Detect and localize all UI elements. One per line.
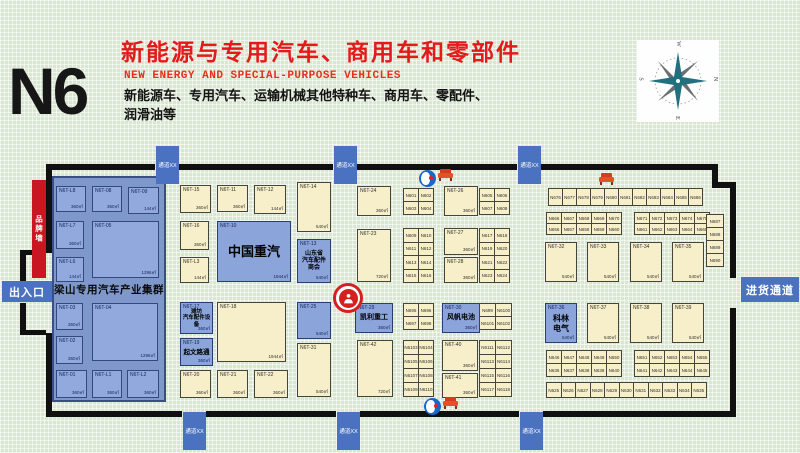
booth-N6T-30: N6T-30风帆电池360㎡ <box>442 303 480 333</box>
booth-cell-N635: N635 <box>691 382 707 398</box>
booth-area: 540㎡ <box>689 335 701 341</box>
floorplan-stage: N6 新能源与专用汽车、商用车和零部件 NEW ENERGY AND SPECI… <box>0 0 800 453</box>
page-subtitle-en: NEW ENERGY AND SPECIAL-PURPOSE VEHICLES <box>124 70 401 82</box>
compass-letter-bottom: E <box>674 116 680 120</box>
booth-code: N6T-03 <box>59 305 75 311</box>
booth-N6T-13: N6T-13山东省 汽车配件 商会540㎡ <box>297 239 331 283</box>
passage-label: 通道XX <box>156 146 179 184</box>
booth-cell-N6104: N6104 <box>418 340 434 355</box>
booth-area: 540㎡ <box>604 335 616 341</box>
booth-cell-N601: N601 <box>403 188 419 202</box>
booth-cell-N6105: N6105 <box>403 354 419 369</box>
booth-N6T-21: N6T-21360㎡ <box>217 370 248 398</box>
booth-cell-N651: N651 <box>634 350 650 364</box>
booth-N6T-12: N6T-12144㎡ <box>254 185 286 214</box>
booth-cell-N621: N621 <box>479 255 495 270</box>
booth-code: N6T-27 <box>447 230 463 236</box>
booth-cell-N660: N660 <box>606 223 622 235</box>
booth-area: 360㎡ <box>198 358 210 364</box>
booth-N6T-L6: N6T-L6144㎡ <box>56 257 84 282</box>
booth-area: 144㎡ <box>69 274 81 280</box>
booth-cell-N6115: N6115 <box>479 368 496 383</box>
booth-cell-N611: N611 <box>403 242 419 257</box>
booth-cell-N662: N662 <box>649 223 665 235</box>
booth-area: 540㎡ <box>316 389 328 395</box>
booth-cell-N685: N685 <box>674 188 689 206</box>
wall-segment <box>179 164 333 170</box>
wall-segment <box>360 411 519 417</box>
booth-cell-N652: N652 <box>649 350 665 364</box>
booth-N6T-31: N6T-31540㎡ <box>297 343 331 397</box>
passage-label: 通道XX <box>337 412 360 450</box>
booth-area: 720㎡ <box>376 274 388 280</box>
booth-N6T-24: N6T-24360㎡ <box>357 186 391 216</box>
booth-cell-N6114: N6114 <box>495 354 512 369</box>
booth-cell-N614: N614 <box>418 255 434 270</box>
wall-segment <box>46 164 155 170</box>
booth-cell-N648: N648 <box>576 350 592 364</box>
booth-area: 540㎡ <box>316 331 328 337</box>
booth-N6T-L2: N6T-L2360㎡ <box>127 370 159 398</box>
booth-cell-N620: N620 <box>494 242 510 257</box>
booth-cell-N686: N686 <box>688 188 703 206</box>
booth-area: 360㎡ <box>107 390 119 396</box>
booth-area: 144㎡ <box>144 206 156 212</box>
booth-code: N6T-L2 <box>130 372 146 378</box>
booth-cell-N678: N678 <box>576 188 591 206</box>
booth-cell-N6118: N6118 <box>495 382 512 397</box>
booth-N6T-17: N6T-17潍坊 汽车配件设备360㎡ <box>180 302 213 334</box>
booth-N6T-14: N6T-14540㎡ <box>297 182 331 232</box>
booth-cell-N6110: N6110 <box>418 382 434 397</box>
booth-cell-N6106: N6106 <box>418 354 434 369</box>
booth-cell-N687: N687 <box>706 214 724 228</box>
booth-cell-N664: N664 <box>679 223 695 235</box>
booth-area: 540㎡ <box>689 274 701 280</box>
booth-code: N6T-38 <box>633 305 649 311</box>
booth-code: N6T-21 <box>220 372 236 378</box>
booth-area: 540㎡ <box>316 275 328 281</box>
booth-cell-N637: N637 <box>561 363 577 377</box>
booth-code: N6T-L6 <box>59 259 75 265</box>
booth-cell-N622: N622 <box>494 255 510 270</box>
booth-cell-N654: N654 <box>679 350 695 364</box>
booth-cell-N683: N683 <box>646 188 661 206</box>
compass-letter-top: W <box>675 41 681 47</box>
booth-cell-N6103: N6103 <box>403 340 419 355</box>
booth-cell-N6111: N6111 <box>479 340 496 355</box>
booth-cell-N695: N695 <box>403 303 419 317</box>
booth-cell-N6117: N6117 <box>479 382 496 397</box>
liangshan-cluster-label: 梁山专用汽车产业集群 <box>52 282 166 296</box>
hall-code: N6 <box>8 58 86 124</box>
booth-cell-N661: N661 <box>634 223 650 235</box>
brand-wall: 品牌墙 <box>32 180 46 278</box>
booth-cell-N642: N642 <box>649 363 665 377</box>
booth-cell-N6109: N6109 <box>403 382 419 397</box>
booth-code: N6T-L3 <box>183 259 199 265</box>
booth-code: N6T-L8 <box>59 188 75 194</box>
booth-area: 360㎡ <box>196 205 208 211</box>
booth-cell-N613: N613 <box>403 255 419 270</box>
booth-N6T-34: N6T-34540㎡ <box>630 242 662 282</box>
passage-label: 通道XX <box>334 146 357 184</box>
compass-letter-right: N <box>712 77 718 81</box>
booth-N6T-40: N6T-40360㎡ <box>442 340 478 371</box>
compass-rose: W N E S <box>637 40 719 122</box>
booth-N6T-42: N6T-42720㎡ <box>357 340 393 397</box>
booth-cell-N659: N659 <box>591 223 607 235</box>
booth-code: N6T-05 <box>95 223 111 229</box>
booth-code: N6T-28 <box>447 259 463 265</box>
entrance-exit-label: 出入口 <box>2 281 52 302</box>
booth-cell-N684: N684 <box>660 188 675 206</box>
booth-code: N6T-40 <box>445 342 461 348</box>
booth-area: 360㎡ <box>463 390 475 396</box>
compass-star-icon <box>637 40 719 122</box>
booth-code: N6T-16 <box>183 223 199 229</box>
restroom-icon <box>419 170 436 187</box>
booth-N6T-05: N6T-051296㎡ <box>92 221 159 278</box>
booth-N6T-22: N6T-22360㎡ <box>254 370 288 398</box>
booth-N6T-18: N6T-181944㎡ <box>217 302 286 362</box>
booth-N6T-09: N6T-09144㎡ <box>128 187 159 214</box>
booth-cell-N625: N625 <box>546 382 562 398</box>
booth-cell-N603: N603 <box>403 201 419 215</box>
booth-N6T-02: N6T-02360㎡ <box>56 336 83 364</box>
wall-segment <box>543 411 736 417</box>
rest-area-sofa-icon <box>598 172 615 187</box>
booth-cell-N610: N610 <box>418 228 434 243</box>
booth-cell-N646: N646 <box>546 350 562 364</box>
booth-code: N6T-41 <box>445 375 461 381</box>
booth-cell-N645: N645 <box>694 363 710 377</box>
booth-N6T-41: N6T-41360㎡ <box>442 373 478 398</box>
booth-cell-N690: N690 <box>706 253 724 267</box>
booth-code: N6T-02 <box>59 338 75 344</box>
booth-cell-N640: N640 <box>606 363 622 377</box>
booth-cell-N6113: N6113 <box>479 354 496 369</box>
booth-cell-N681: N681 <box>618 188 633 206</box>
booth-code: N6T-25 <box>300 304 316 310</box>
booth-area: 360㎡ <box>107 204 119 210</box>
booth-area: 1296㎡ <box>141 270 156 276</box>
service-point-inner <box>339 289 358 308</box>
booth-cell-N634: N634 <box>677 382 693 398</box>
booth-area: 540㎡ <box>562 335 574 341</box>
booth-N6T-27: N6T-27360㎡ <box>444 228 478 255</box>
booth-N6T-L7: N6T-L7360㎡ <box>56 221 84 249</box>
booth-area: 360㎡ <box>378 325 390 331</box>
booth-N6T-38: N6T-38540㎡ <box>630 303 662 343</box>
booth-code: N6T-14 <box>300 184 316 190</box>
booth-area: 360㎡ <box>144 390 156 396</box>
booth-N6T-L3: N6T-L3144㎡ <box>180 257 209 283</box>
booth-area: 360㎡ <box>463 208 475 214</box>
booth-code: N6T-23 <box>360 231 376 237</box>
booth-code: N6T-09 <box>131 189 147 195</box>
booth-code: N6T-15 <box>183 187 199 193</box>
booth-cell-N636: N636 <box>546 363 562 377</box>
booth-cell-N631: N631 <box>633 382 649 398</box>
booth-code: N6T-24 <box>360 188 376 194</box>
wall-segment <box>46 411 182 417</box>
booth-code: N6T-32 <box>548 244 564 250</box>
wall-segment <box>206 411 336 417</box>
booth-cell-N643: N643 <box>664 363 680 377</box>
booth-N6T-19: N6T-19起文路通360㎡ <box>180 338 213 366</box>
booth-cell-N656: N656 <box>546 223 562 235</box>
booth-code: N6T-L1 <box>95 372 111 378</box>
booth-area: 540㎡ <box>604 274 616 280</box>
booth-N6T-33: N6T-33540㎡ <box>587 242 619 282</box>
booth-area: 360㎡ <box>376 208 388 214</box>
booth-area: 540㎡ <box>562 274 574 280</box>
booth-area: 360㎡ <box>68 322 80 328</box>
booth-N6T-23: N6T-23720㎡ <box>357 229 391 282</box>
booth-cell-N697: N697 <box>403 316 419 330</box>
booth-N6T-08: N6T-08360㎡ <box>92 186 122 212</box>
booth-N6T-25: N6T-25540㎡ <box>297 302 331 339</box>
booth-cell-N606: N606 <box>494 188 510 202</box>
booth-area: 540㎡ <box>647 274 659 280</box>
booth-N6T-20: N6T-20360㎡ <box>180 370 211 398</box>
booth-cell-N6102: N6102 <box>495 316 512 330</box>
booth-code: N6T-34 <box>633 244 649 250</box>
booth-cell-N6107: N6107 <box>403 368 419 383</box>
booth-cell-N699: N699 <box>479 303 496 317</box>
booth-cell-N647: N647 <box>561 350 577 364</box>
booth-area: 360㎡ <box>71 204 83 210</box>
booth-N6T-26: N6T-26360㎡ <box>444 186 478 216</box>
booth-cell-N623: N623 <box>479 269 495 284</box>
passage-label: 通道XX <box>520 412 543 450</box>
booth-area: 360㎡ <box>233 204 245 210</box>
booth-cell-N689: N689 <box>706 240 724 254</box>
booth-cell-N6101: N6101 <box>479 316 496 330</box>
booth-N6T-15: N6T-15360㎡ <box>180 185 211 213</box>
booth-area: 360㎡ <box>72 390 84 396</box>
booth-area: 360㎡ <box>463 275 475 281</box>
booth-cell-N627: N627 <box>575 382 591 398</box>
booth-area: 540㎡ <box>316 224 328 230</box>
booth-N6T-04: N6T-041296㎡ <box>92 303 158 361</box>
booth-area: 1296㎡ <box>140 353 155 359</box>
booth-area: 1944㎡ <box>268 354 283 360</box>
booth-cell-N698: N698 <box>418 316 434 330</box>
booth-area: 540㎡ <box>647 335 659 341</box>
wall-segment <box>541 164 712 170</box>
booth-cell-N653: N653 <box>664 350 680 364</box>
booth-code: N6T-39 <box>675 305 691 311</box>
booth-N6T-16: N6T-16360㎡ <box>180 221 209 250</box>
booth-area: 360㎡ <box>198 326 210 332</box>
booth-code: N6T-L7 <box>59 223 75 229</box>
booth-cell-N6100: N6100 <box>495 303 512 317</box>
booth-cell-N641: N641 <box>634 363 650 377</box>
wall-segment <box>46 164 52 253</box>
booth-area: 144㎡ <box>271 206 283 212</box>
booth-cell-N615: N615 <box>403 269 419 284</box>
booth-N6T-35: N6T-35540㎡ <box>672 242 704 282</box>
booth-area: 360㎡ <box>463 363 475 369</box>
booth-cell-N639: N639 <box>591 363 607 377</box>
booth-cell-N602: N602 <box>418 188 434 202</box>
service-point-icon <box>333 283 363 313</box>
booth-cell-N626: N626 <box>561 382 577 398</box>
booth-cell-N618: N618 <box>494 228 510 243</box>
booth-code: N6T-26 <box>447 188 463 194</box>
booth-code: N6T-08 <box>95 188 111 194</box>
booth-code: N6T-11 <box>220 187 236 193</box>
booth-cell-N682: N682 <box>632 188 647 206</box>
booth-area: 144㎡ <box>194 275 206 281</box>
booth-code: N6T-22 <box>257 372 273 378</box>
booth-area: 720㎡ <box>378 389 390 395</box>
booth-area: 360㎡ <box>68 356 80 362</box>
passage-label: 通道XX <box>518 146 541 184</box>
booth-N6T-28: N6T-28360㎡ <box>444 257 478 283</box>
booth-cell-N633: N633 <box>662 382 678 398</box>
booth-exhibitor-label: 中国重汽 <box>218 226 290 278</box>
booth-cell-N655: N655 <box>694 350 710 364</box>
wall-segment <box>730 182 736 278</box>
compass-letter-left: S <box>638 77 644 80</box>
booth-cell-N658: N658 <box>576 223 592 235</box>
booth-area: 360㎡ <box>463 247 475 253</box>
booth-N6T-10: N6T-10中国重汽1944㎡ <box>217 221 291 282</box>
booth-N6T-29: N6T-29凯利重工360㎡ <box>355 303 393 333</box>
booth-cell-N624: N624 <box>494 269 510 284</box>
booth-cell-N6112: N6112 <box>495 340 512 355</box>
booth-cell-N605: N605 <box>479 188 495 202</box>
booth-code: N6T-04 <box>95 305 111 311</box>
booth-area: 360㎡ <box>69 241 81 247</box>
booth-cell-N638: N638 <box>576 363 592 377</box>
booth-N6T-L8: N6T-L8360㎡ <box>56 186 86 212</box>
booth-cell-N629: N629 <box>604 382 620 398</box>
booth-area: 360㎡ <box>273 390 285 396</box>
booth-cell-N676: N676 <box>548 188 563 206</box>
booth-N6T-36: N6T-36科林 电气540㎡ <box>545 303 577 343</box>
booth-cell-N608: N608 <box>494 201 510 215</box>
booth-cell-N677: N677 <box>562 188 577 206</box>
booth-cell-N644: N644 <box>679 363 695 377</box>
booth-code: N6T-42 <box>360 342 376 348</box>
booth-exhibitor-label: 山东省 汽车配件 商会 <box>298 244 330 279</box>
goods-passage-label: 进货通道 <box>741 277 799 302</box>
booth-code: N6T-20 <box>183 372 199 378</box>
booth-N6T-01: N6T-01360㎡ <box>56 370 87 398</box>
booth-N6T-11: N6T-11360㎡ <box>217 185 248 212</box>
booth-cell-N657: N657 <box>561 223 577 235</box>
booth-cell-N612: N612 <box>418 242 434 257</box>
page-title: 新能源与专用汽车、商用车和零部件 <box>121 33 521 67</box>
booth-cell-N6108: N6108 <box>418 368 434 383</box>
booth-code: N6T-31 <box>300 345 316 351</box>
booth-area: 1944㎡ <box>273 274 288 280</box>
booth-area: 360㎡ <box>233 390 245 396</box>
wall-segment <box>20 330 46 335</box>
booth-cell-N619: N619 <box>479 242 495 257</box>
booth-area: 360㎡ <box>465 325 477 331</box>
booth-cell-N632: N632 <box>648 382 664 398</box>
wall-segment <box>730 308 736 417</box>
booth-code: N6T-18 <box>220 304 236 310</box>
booth-cell-N680: N680 <box>604 188 619 206</box>
booth-code: N6T-35 <box>675 244 691 250</box>
booth-cell-N630: N630 <box>619 382 635 398</box>
booth-code: N6T-33 <box>590 244 606 250</box>
booth-N6T-03: N6T-03360㎡ <box>56 303 83 330</box>
booth-cell-N663: N663 <box>664 223 680 235</box>
booth-cell-N604: N604 <box>418 201 434 215</box>
booth-N6T-32: N6T-32540㎡ <box>545 242 577 282</box>
booth-cell-N609: N609 <box>403 228 419 243</box>
rest-area-sofa-icon <box>437 168 454 183</box>
booth-code: N6T-37 <box>590 305 606 311</box>
rest-area-sofa-icon <box>442 396 459 411</box>
booth-N6T-39: N6T-39540㎡ <box>672 303 704 343</box>
booth-code: N6T-01 <box>59 372 75 378</box>
booth-cell-N696: N696 <box>418 303 434 317</box>
passage-label: 通道XX <box>183 412 206 450</box>
booth-cell-N688: N688 <box>706 227 724 241</box>
booth-cell-N607: N607 <box>479 201 495 215</box>
booth-cell-N617: N617 <box>479 228 495 243</box>
booth-cell-N628: N628 <box>590 382 606 398</box>
booth-cell-N679: N679 <box>590 188 605 206</box>
wall-segment <box>46 333 52 417</box>
booth-cell-N6116: N6116 <box>495 368 512 383</box>
booth-code: N6T-12 <box>257 187 273 193</box>
booth-N6T-37: N6T-37540㎡ <box>587 303 619 343</box>
booth-area: 360㎡ <box>196 390 208 396</box>
restroom-icon <box>424 398 441 415</box>
booth-cell-N649: N649 <box>591 350 607 364</box>
booth-cell-N650: N650 <box>606 350 622 364</box>
booth-area: 360㎡ <box>194 242 206 248</box>
category-description: 新能源车、专用汽车、运输机械其他特种车、商用车、零配件、 润滑油等 <box>124 87 564 125</box>
booth-N6T-L1: N6T-L1360㎡ <box>92 370 122 398</box>
booth-cell-N616: N616 <box>418 269 434 284</box>
